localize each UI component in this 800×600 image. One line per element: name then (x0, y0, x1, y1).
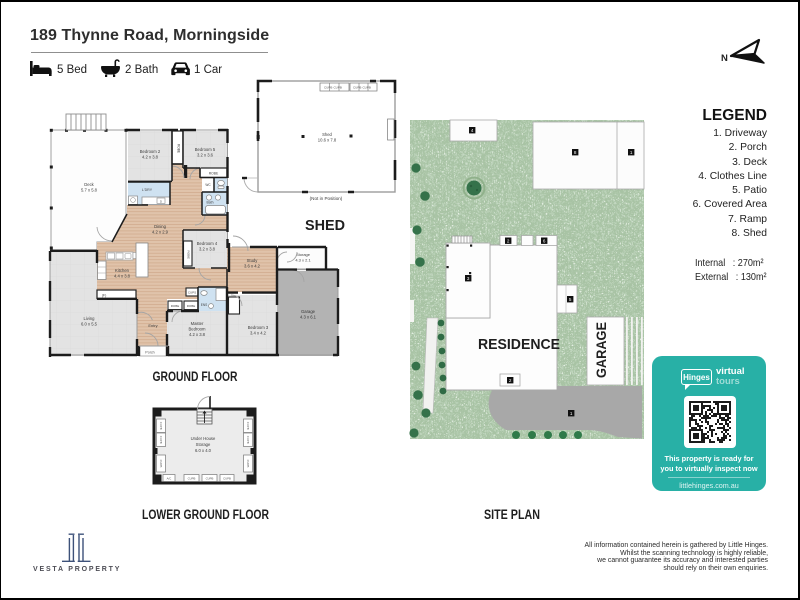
svg-text:10.6 x 7.8: 10.6 x 7.8 (318, 138, 337, 143)
svg-text:CUPB: CUPB (246, 460, 250, 468)
svg-text:4.2 x 2.9: 4.2 x 2.9 (152, 230, 169, 235)
svg-text:CUPB: CUPB (324, 86, 332, 90)
svg-text:ROBE: ROBE (187, 251, 191, 260)
svg-text:6.0 x 5.5: 6.0 x 5.5 (81, 322, 98, 327)
svg-text:WC: WC (205, 183, 211, 187)
svg-text:ROBE: ROBE (187, 304, 196, 308)
svg-text:6.0 x 4.0: 6.0 x 4.0 (195, 448, 212, 453)
svg-text:4.2 x 3.8: 4.2 x 3.8 (142, 155, 159, 160)
svg-text:Under House: Under House (191, 436, 216, 441)
svg-text:Bedroom 2: Bedroom 2 (140, 149, 161, 154)
svg-text:4.3 x 6.1: 4.3 x 6.1 (300, 315, 317, 320)
svg-text:CUPB: CUPB (206, 477, 214, 481)
svg-text:GARAGE: GARAGE (594, 322, 609, 378)
svg-text:CUPB: CUPB (159, 422, 163, 430)
svg-text:ROBE: ROBE (171, 304, 180, 308)
svg-text:3.2 x 3.6: 3.2 x 3.6 (197, 153, 214, 158)
svg-text:GROUND FLOOR: GROUND FLOOR (153, 369, 238, 384)
svg-text:4.4 x 3.8: 4.4 x 3.8 (114, 274, 131, 279)
svg-text:Deck: Deck (84, 182, 94, 187)
svg-text:(F): (F) (102, 294, 107, 298)
svg-text:CUPB: CUPB (353, 86, 361, 90)
svg-text:Dining: Dining (154, 224, 167, 229)
svg-text:A/C: A/C (167, 477, 172, 481)
svg-text:CUPB: CUPB (363, 86, 371, 90)
svg-text:CUPB: CUPB (159, 436, 163, 444)
svg-text:CUPB: CUPB (246, 436, 250, 444)
svg-text:4: 4 (471, 128, 474, 133)
svg-text:CUPB: CUPB (334, 86, 342, 90)
svg-text:4.2 x 3.8: 4.2 x 3.8 (189, 332, 206, 337)
svg-text:Master: Master (191, 321, 204, 326)
svg-text:3.6 x 4.2: 3.6 x 4.2 (244, 264, 261, 269)
svg-text:N: N (721, 53, 728, 64)
svg-text:SITE PLAN: SITE PLAN (484, 507, 540, 522)
svg-text:Study: Study (247, 258, 259, 263)
svg-text:Storage: Storage (296, 252, 311, 257)
svg-text:5.7 x 5.8: 5.7 x 5.8 (81, 188, 98, 193)
svg-text:ROBE: ROBE (177, 144, 181, 153)
svg-text:Storage: Storage (196, 442, 211, 447)
svg-text:2: 2 (507, 239, 510, 244)
svg-text:Bath: Bath (207, 201, 214, 205)
svg-text:1: 1 (630, 150, 633, 155)
svg-text:3: 3 (467, 276, 470, 281)
svg-text:1: 1 (570, 411, 573, 416)
svg-text:LOWER GROUND FLOOR: LOWER GROUND FLOOR (142, 507, 269, 522)
svg-text:RESIDENCE: RESIDENCE (478, 336, 560, 353)
svg-text:Bedroom: Bedroom (189, 327, 207, 332)
svg-text:Porch: Porch (145, 351, 154, 355)
svg-text:4.3 x 2.1: 4.3 x 2.1 (295, 258, 311, 263)
svg-text:CUPB: CUPB (246, 422, 250, 430)
svg-text:8: 8 (574, 150, 577, 155)
svg-text:5: 5 (569, 297, 572, 302)
svg-text:(Not in Position): (Not in Position) (310, 196, 343, 201)
svg-text:3.4 x 4.2: 3.4 x 4.2 (250, 331, 267, 336)
svg-text:3.2 x 3.8: 3.2 x 3.8 (199, 247, 216, 252)
svg-text:Living: Living (84, 316, 96, 321)
svg-text:SHED: SHED (305, 218, 345, 234)
svg-text:Garage: Garage (301, 309, 316, 314)
svg-text:CUPB: CUPB (188, 477, 196, 481)
svg-text:Shed: Shed (322, 132, 332, 137)
svg-text:ENS: ENS (201, 303, 208, 307)
svg-text:2: 2 (509, 378, 512, 383)
svg-text:CUPB: CUPB (159, 460, 163, 468)
svg-text:Bedroom 3: Bedroom 3 (248, 325, 269, 330)
svg-text:L'DRY: L'DRY (142, 188, 153, 192)
svg-text:6: 6 (543, 239, 546, 244)
svg-text:Entry: Entry (148, 323, 157, 328)
svg-text:Bedroom 5: Bedroom 5 (195, 147, 216, 152)
svg-text:Kitchen: Kitchen (115, 268, 130, 273)
svg-text:CUPB: CUPB (223, 477, 231, 481)
svg-text:ROBE: ROBE (209, 172, 219, 176)
svg-text:Bedroom 4: Bedroom 4 (197, 241, 218, 246)
svg-text:CUPS: CUPS (188, 291, 196, 295)
